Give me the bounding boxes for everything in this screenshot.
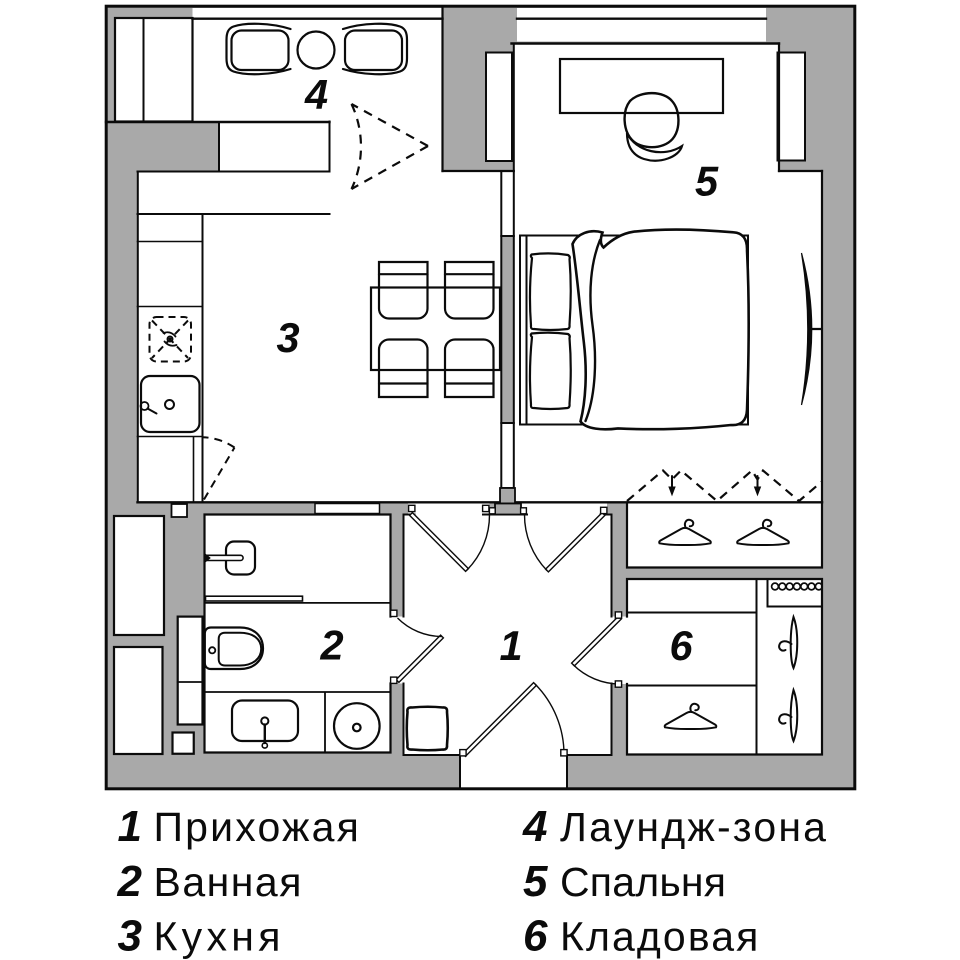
svg-text:Ванная: Ванная	[154, 859, 303, 905]
svg-text:2: 2	[319, 622, 343, 669]
svg-text:Кухня: Кухня	[154, 914, 285, 960]
svg-text:Кладовая: Кладовая	[560, 914, 760, 960]
svg-text:4: 4	[522, 802, 547, 851]
svg-text:1: 1	[118, 802, 142, 851]
svg-text:5: 5	[695, 158, 719, 205]
svg-text:4: 4	[304, 71, 328, 118]
svg-text:3: 3	[118, 912, 142, 960]
svg-text:5: 5	[523, 857, 548, 906]
svg-text:6: 6	[523, 912, 548, 960]
svg-text:2: 2	[117, 857, 143, 906]
svg-text:6: 6	[669, 622, 693, 669]
svg-text:Лаундж-зона: Лаундж-зона	[560, 804, 828, 850]
svg-text:Прихожая: Прихожая	[154, 804, 362, 850]
svg-text:1: 1	[499, 622, 522, 669]
svg-text:Спальня: Спальня	[560, 859, 726, 905]
svg-text:3: 3	[276, 314, 299, 361]
